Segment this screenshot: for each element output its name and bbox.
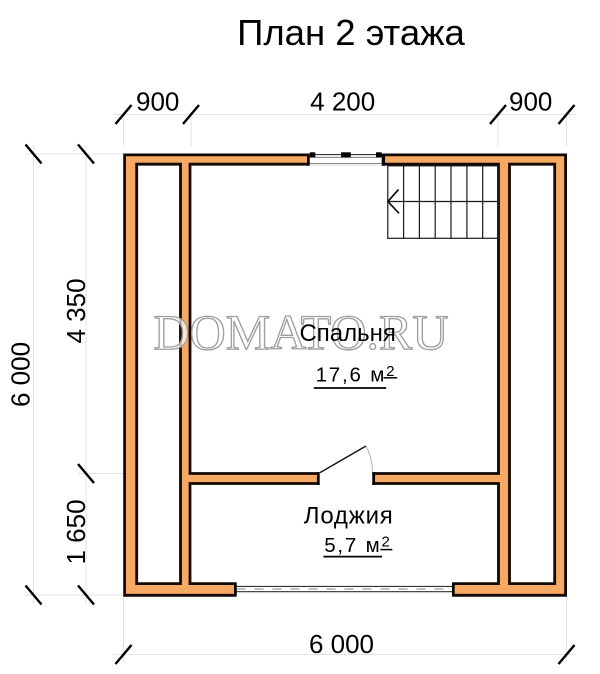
svg-text:План 2 этажа: План 2 этажа: [237, 12, 465, 53]
svg-text:6 000: 6 000: [309, 629, 374, 659]
svg-text:900: 900: [509, 87, 552, 117]
svg-text:5,7 м2: 5,7 м2: [324, 533, 391, 557]
svg-text:900: 900: [136, 87, 179, 117]
svg-text:Лоджия: Лоджия: [304, 503, 394, 530]
svg-text:Спальня: Спальня: [299, 320, 395, 347]
svg-text:6 000: 6 000: [6, 342, 36, 407]
svg-text:4 350: 4 350: [61, 278, 91, 343]
svg-text:17,6 м2: 17,6 м2: [316, 363, 397, 387]
svg-text:1 650: 1 650: [61, 499, 91, 564]
svg-text:4 200: 4 200: [310, 87, 375, 117]
